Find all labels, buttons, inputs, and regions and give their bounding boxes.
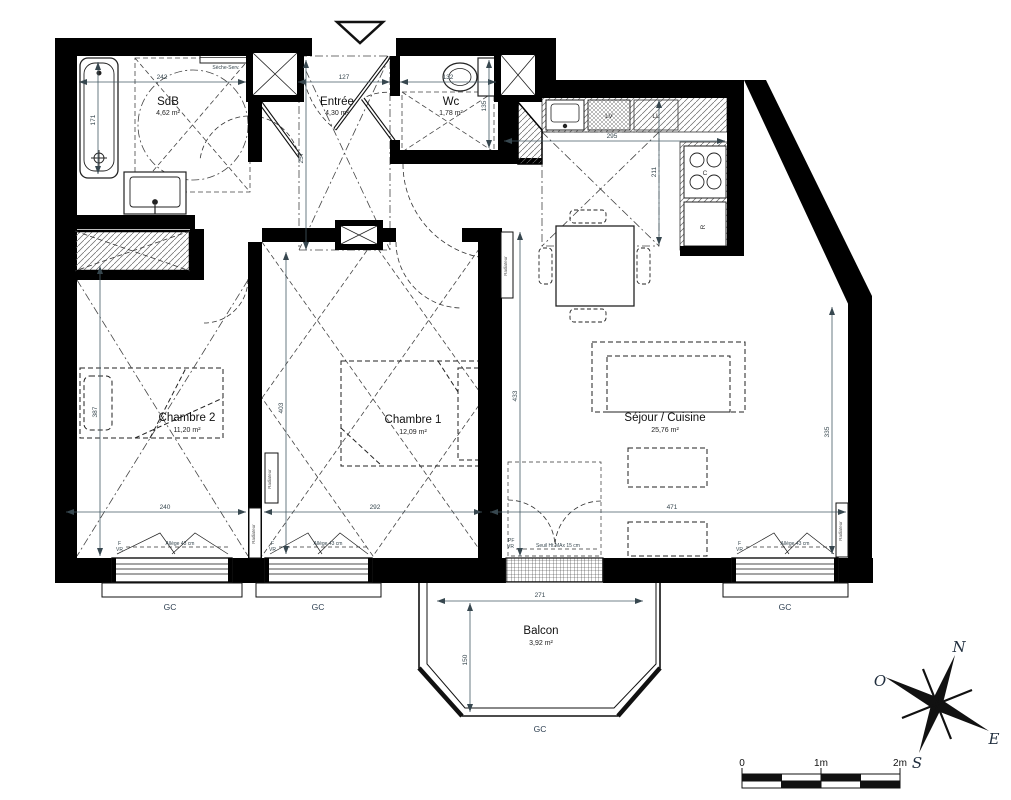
dim-balcon-width: 271	[535, 592, 546, 599]
walls	[55, 38, 873, 583]
room-label-entree: Entrée	[320, 96, 354, 108]
room-area-wc: 1,78 m²	[439, 110, 463, 117]
w3-vr: VR	[736, 547, 743, 553]
dim-chambre2-width: 240	[160, 504, 171, 511]
room-label-sejour: Séjour / Cuisine	[624, 412, 705, 424]
room-label-sdb: SdB	[157, 96, 179, 108]
dim-entree-height: 257	[298, 152, 305, 163]
radiators	[249, 232, 848, 558]
dishwasher-label: LV	[605, 113, 613, 120]
room-area-chambre1: 12,09 m²	[399, 429, 427, 436]
dim-wc-height: 135	[481, 100, 488, 111]
hob-fridge-column	[680, 142, 728, 250]
room-area-balcon: 3,92 m²	[529, 640, 553, 647]
dim-chambre1-width: 292	[370, 504, 381, 511]
towel-dryer-label: Sèche-Serv.	[212, 65, 239, 71]
dim-sejour-width: 471	[667, 504, 678, 511]
balcony	[419, 583, 660, 716]
floor-plan-drawing: 242 171 127 257 132 135 295 211 240 387 …	[0, 0, 1011, 800]
w1-vr: VR	[116, 547, 123, 553]
kitchen-sink	[546, 100, 584, 130]
gc-label-3: GC	[779, 602, 792, 612]
w1-allege: Allège 43 cm	[166, 541, 195, 547]
door-seuil: Seuil Ht MAx 15 cm	[536, 543, 580, 549]
duct-wc	[494, 48, 542, 102]
scale-2m: 2m	[893, 758, 907, 769]
hob-label: C	[703, 170, 708, 177]
radiator-label-3: Radiateur	[251, 524, 256, 544]
dim-wc-width: 132	[443, 74, 454, 81]
chambre1-door-arc	[396, 242, 462, 308]
gc-label-balcon: GC	[534, 724, 547, 734]
w2-allege: Allège 43 cm	[314, 541, 343, 547]
washbasin	[124, 172, 186, 214]
washer-label: LL	[652, 113, 660, 120]
dim-balcon-height: 150	[462, 654, 469, 665]
scale-1m: 1m	[814, 758, 828, 769]
scale-bar: 0 1m 2m	[739, 758, 907, 788]
gc-label-1: GC	[164, 602, 177, 612]
room-label-wc: Wc	[443, 96, 460, 108]
room-label-balcon: Balcon	[523, 625, 558, 637]
gc-label-2: GC	[312, 602, 325, 612]
dim-cuisine-height: 211	[651, 166, 658, 177]
compass-west: O	[874, 672, 886, 690]
w3-allege: Allège 43 cm	[781, 541, 810, 547]
dim-sdb-width: 242	[157, 74, 168, 81]
bed-chambre2	[80, 368, 223, 438]
compass-south: S	[912, 754, 922, 772]
door-vr: VR	[507, 544, 514, 550]
compass-east: E	[988, 730, 1000, 748]
room-area-chambre2: 11,20 m²	[173, 427, 201, 434]
floor-plan-page: 242 171 127 257 132 135 295 211 240 387 …	[0, 0, 1011, 800]
radiator-label-2: Radiateur	[838, 521, 843, 541]
w2-vr: VR	[269, 547, 276, 553]
coffee-table	[628, 448, 707, 487]
fridge-label: R	[700, 224, 707, 229]
dim-chambre2-height: 387	[92, 406, 99, 417]
dim-cuisine-width: 295	[607, 133, 618, 140]
room-area-sdb: 4,62 m²	[156, 110, 180, 117]
dim-sejour-height: 335	[824, 426, 831, 437]
scale-zero: 0	[739, 758, 745, 769]
placard	[75, 231, 190, 271]
duct-sdb	[246, 46, 304, 102]
tv-stand	[628, 522, 707, 556]
room-area-sejour: 25,76 m²	[651, 427, 679, 434]
furniture	[80, 52, 745, 556]
dim-chambre1-side: 403	[278, 402, 285, 413]
radiator-label-1: Radiateur	[503, 256, 508, 276]
room-label-chambre1: Chambre 1	[385, 414, 442, 426]
fridge	[684, 202, 726, 246]
chambre2-door-arc	[204, 279, 248, 323]
dining-table	[539, 210, 650, 322]
radiator-label-4: Radiateur	[267, 469, 272, 489]
dim-sdb-height: 171	[90, 114, 97, 125]
duct-chambre1	[335, 220, 383, 250]
bathtub	[80, 58, 118, 178]
room-label-chambre2: Chambre 2	[159, 412, 216, 424]
sofa	[592, 342, 745, 412]
compass-north: N	[951, 638, 966, 656]
dim-entree-width: 127	[339, 74, 350, 81]
dim-sejour-side: 433	[512, 390, 519, 401]
compass-rose: N O E S	[874, 638, 1000, 772]
balcony-door	[506, 462, 603, 582]
entrance-arrow-icon	[337, 22, 383, 43]
room-area-entree: 4,30 m²	[325, 110, 349, 117]
